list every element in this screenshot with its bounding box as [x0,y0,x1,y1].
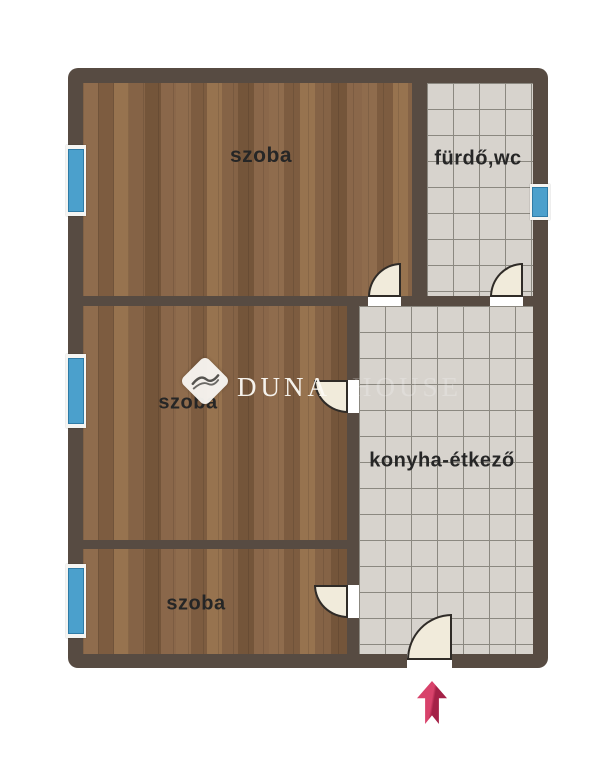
doorway-gap-szoba-top [368,296,401,306]
room-label-szoba-bottom: szoba [166,593,225,616]
window-glass [68,149,84,212]
wall-szoba-middle-bottom [83,540,347,549]
entrance-arrow-icon [417,681,447,724]
window-furdo [530,184,550,220]
window-glass [68,358,84,424]
room-label-konyha-etkezo: konyha-étkező [369,450,514,473]
wave-icon [190,366,220,396]
wall-vertical-segment-2 [347,413,359,585]
doorway-gap-szoba-bottom [347,585,359,618]
wall-horizontal-segment-3 [523,296,533,306]
doorway-gap-furdo [490,296,523,306]
watermark-text-primary: DUNA [237,372,331,403]
wall-vertical-segment-1 [347,306,359,380]
window-szoba-top [66,145,86,216]
watermark-text-secondary: HOUSE [352,372,462,403]
room-szoba-top [83,83,412,296]
wall-szoba-furdo [412,83,427,306]
wall-horizontal-segment-1 [83,296,368,306]
room-label-furdo-wc: fürdő,wc [434,148,521,171]
window-glass [532,187,548,217]
room-label-szoba-top: szoba [230,144,292,168]
window-glass [68,568,84,634]
room-szoba-middle [83,306,347,540]
floor-plan-image: szoba fürdő,wc szoba konyha-étkező szoba… [0,0,600,776]
window-szoba-middle [66,354,86,428]
room-konyha-etkezo [359,306,533,654]
window-szoba-bottom [66,564,86,638]
wall-horizontal-segment-2 [401,296,490,306]
wall-vertical-segment-3 [347,618,359,654]
